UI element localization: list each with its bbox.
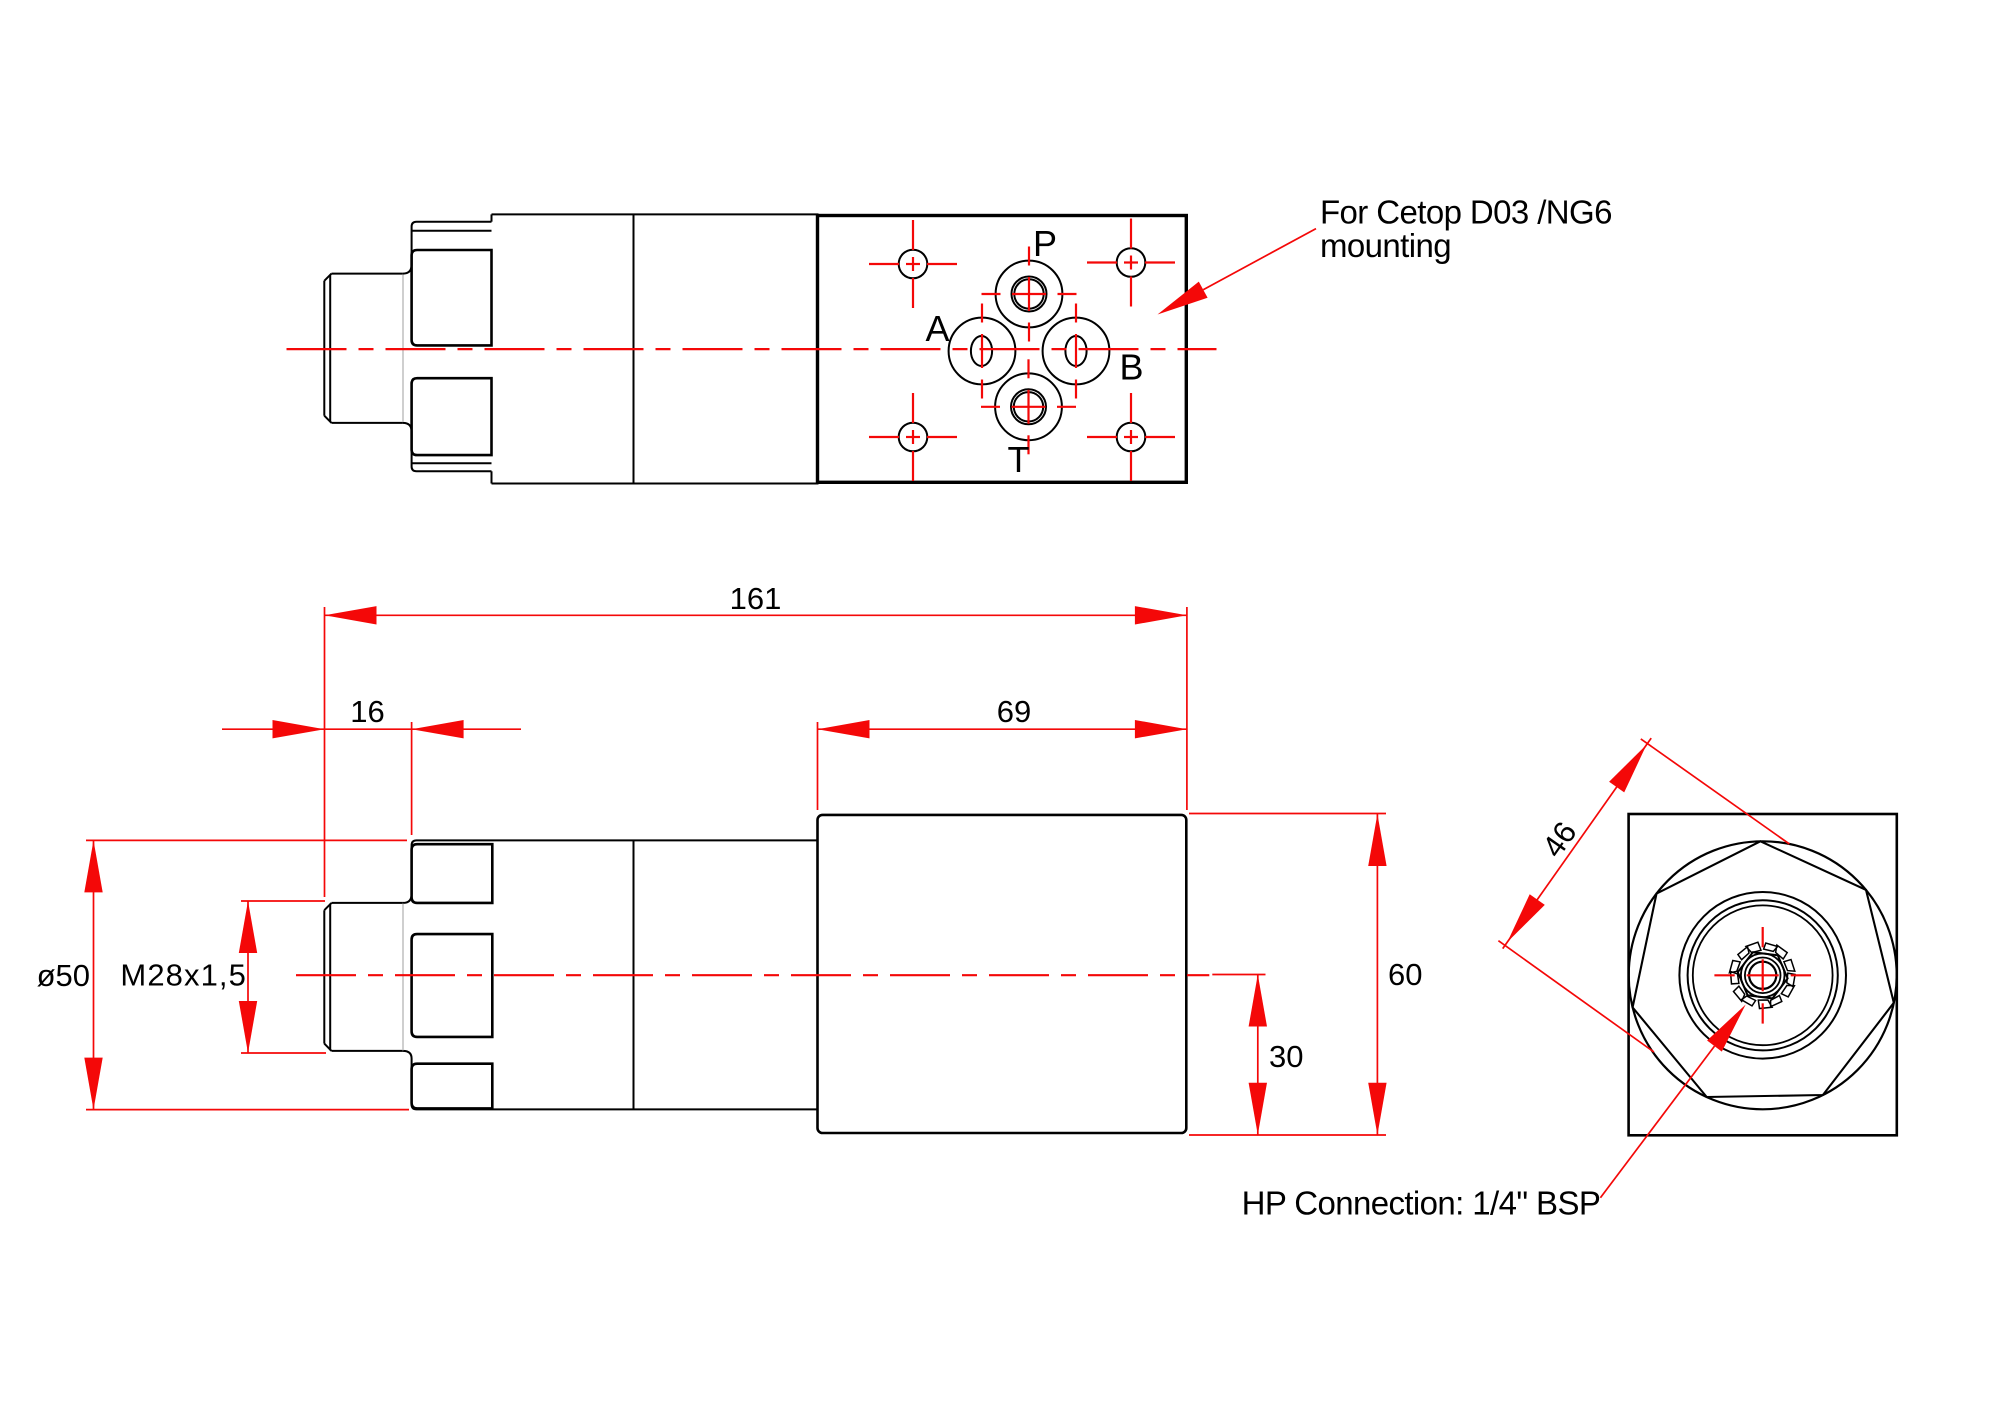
- svg-text:161: 161: [730, 581, 782, 616]
- svg-text:30: 30: [1269, 1039, 1303, 1074]
- svg-text:M28x1,5: M28x1,5: [120, 958, 247, 993]
- svg-text:ø50: ø50: [37, 958, 90, 993]
- svg-text:HP Connection: 1/4" BSP: HP Connection: 1/4" BSP: [1242, 1185, 1601, 1222]
- svg-text:69: 69: [997, 694, 1031, 729]
- svg-text:60: 60: [1388, 957, 1422, 992]
- svg-text:For Cetop D03 /NG6: For Cetop D03 /NG6: [1320, 194, 1612, 231]
- svg-text:B: B: [1120, 347, 1144, 388]
- svg-text:mounting: mounting: [1320, 227, 1451, 264]
- svg-text:16: 16: [350, 694, 384, 729]
- svg-text:A: A: [926, 308, 950, 349]
- svg-text:T: T: [1008, 439, 1030, 480]
- svg-text:P: P: [1033, 223, 1057, 264]
